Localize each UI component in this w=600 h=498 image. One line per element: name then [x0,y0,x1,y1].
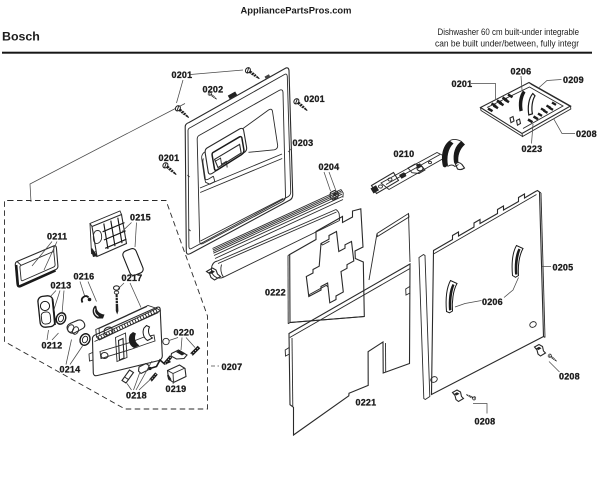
svg-text:0211: 0211 [47,232,67,242]
svg-text:0221: 0221 [356,398,377,408]
svg-text:0201: 0201 [452,79,473,89]
svg-text:0206: 0206 [482,297,503,307]
svg-text:0201: 0201 [172,70,193,80]
svg-text:0203: 0203 [293,138,314,148]
svg-text:0201: 0201 [159,153,180,163]
svg-text:0217: 0217 [122,273,143,283]
svg-text:0219: 0219 [166,384,187,394]
svg-text:AppliancePartsPros.com: AppliancePartsPros.com [241,6,352,17]
svg-text:0201: 0201 [304,94,325,104]
svg-text:0207: 0207 [222,362,243,372]
svg-text:0208: 0208 [576,129,597,139]
svg-text:0223: 0223 [522,144,543,154]
svg-text:0208: 0208 [559,372,580,382]
svg-text:Dishwasher 60 cm built-under i: Dishwasher 60 cm built-under integrable [438,26,580,37]
svg-text:0213: 0213 [51,281,72,291]
svg-text:0214: 0214 [60,365,81,375]
svg-text:0215: 0215 [130,213,151,223]
svg-text:0202: 0202 [203,85,224,95]
svg-text:0220: 0220 [174,328,195,338]
svg-text:Bosch: Bosch [2,30,40,44]
svg-text:0216: 0216 [74,272,95,282]
svg-text:0218: 0218 [126,391,147,401]
svg-text:0206: 0206 [511,67,532,77]
svg-text:0212: 0212 [42,341,63,351]
svg-text:0208: 0208 [475,417,496,427]
svg-text:can be built under/between, fu: can be built under/between, fully integr [435,37,579,48]
svg-text:0204: 0204 [319,162,340,172]
svg-text:0210: 0210 [394,149,415,159]
svg-text:0209: 0209 [563,75,584,85]
svg-text:0222: 0222 [265,288,286,298]
svg-text:0205: 0205 [553,263,574,273]
